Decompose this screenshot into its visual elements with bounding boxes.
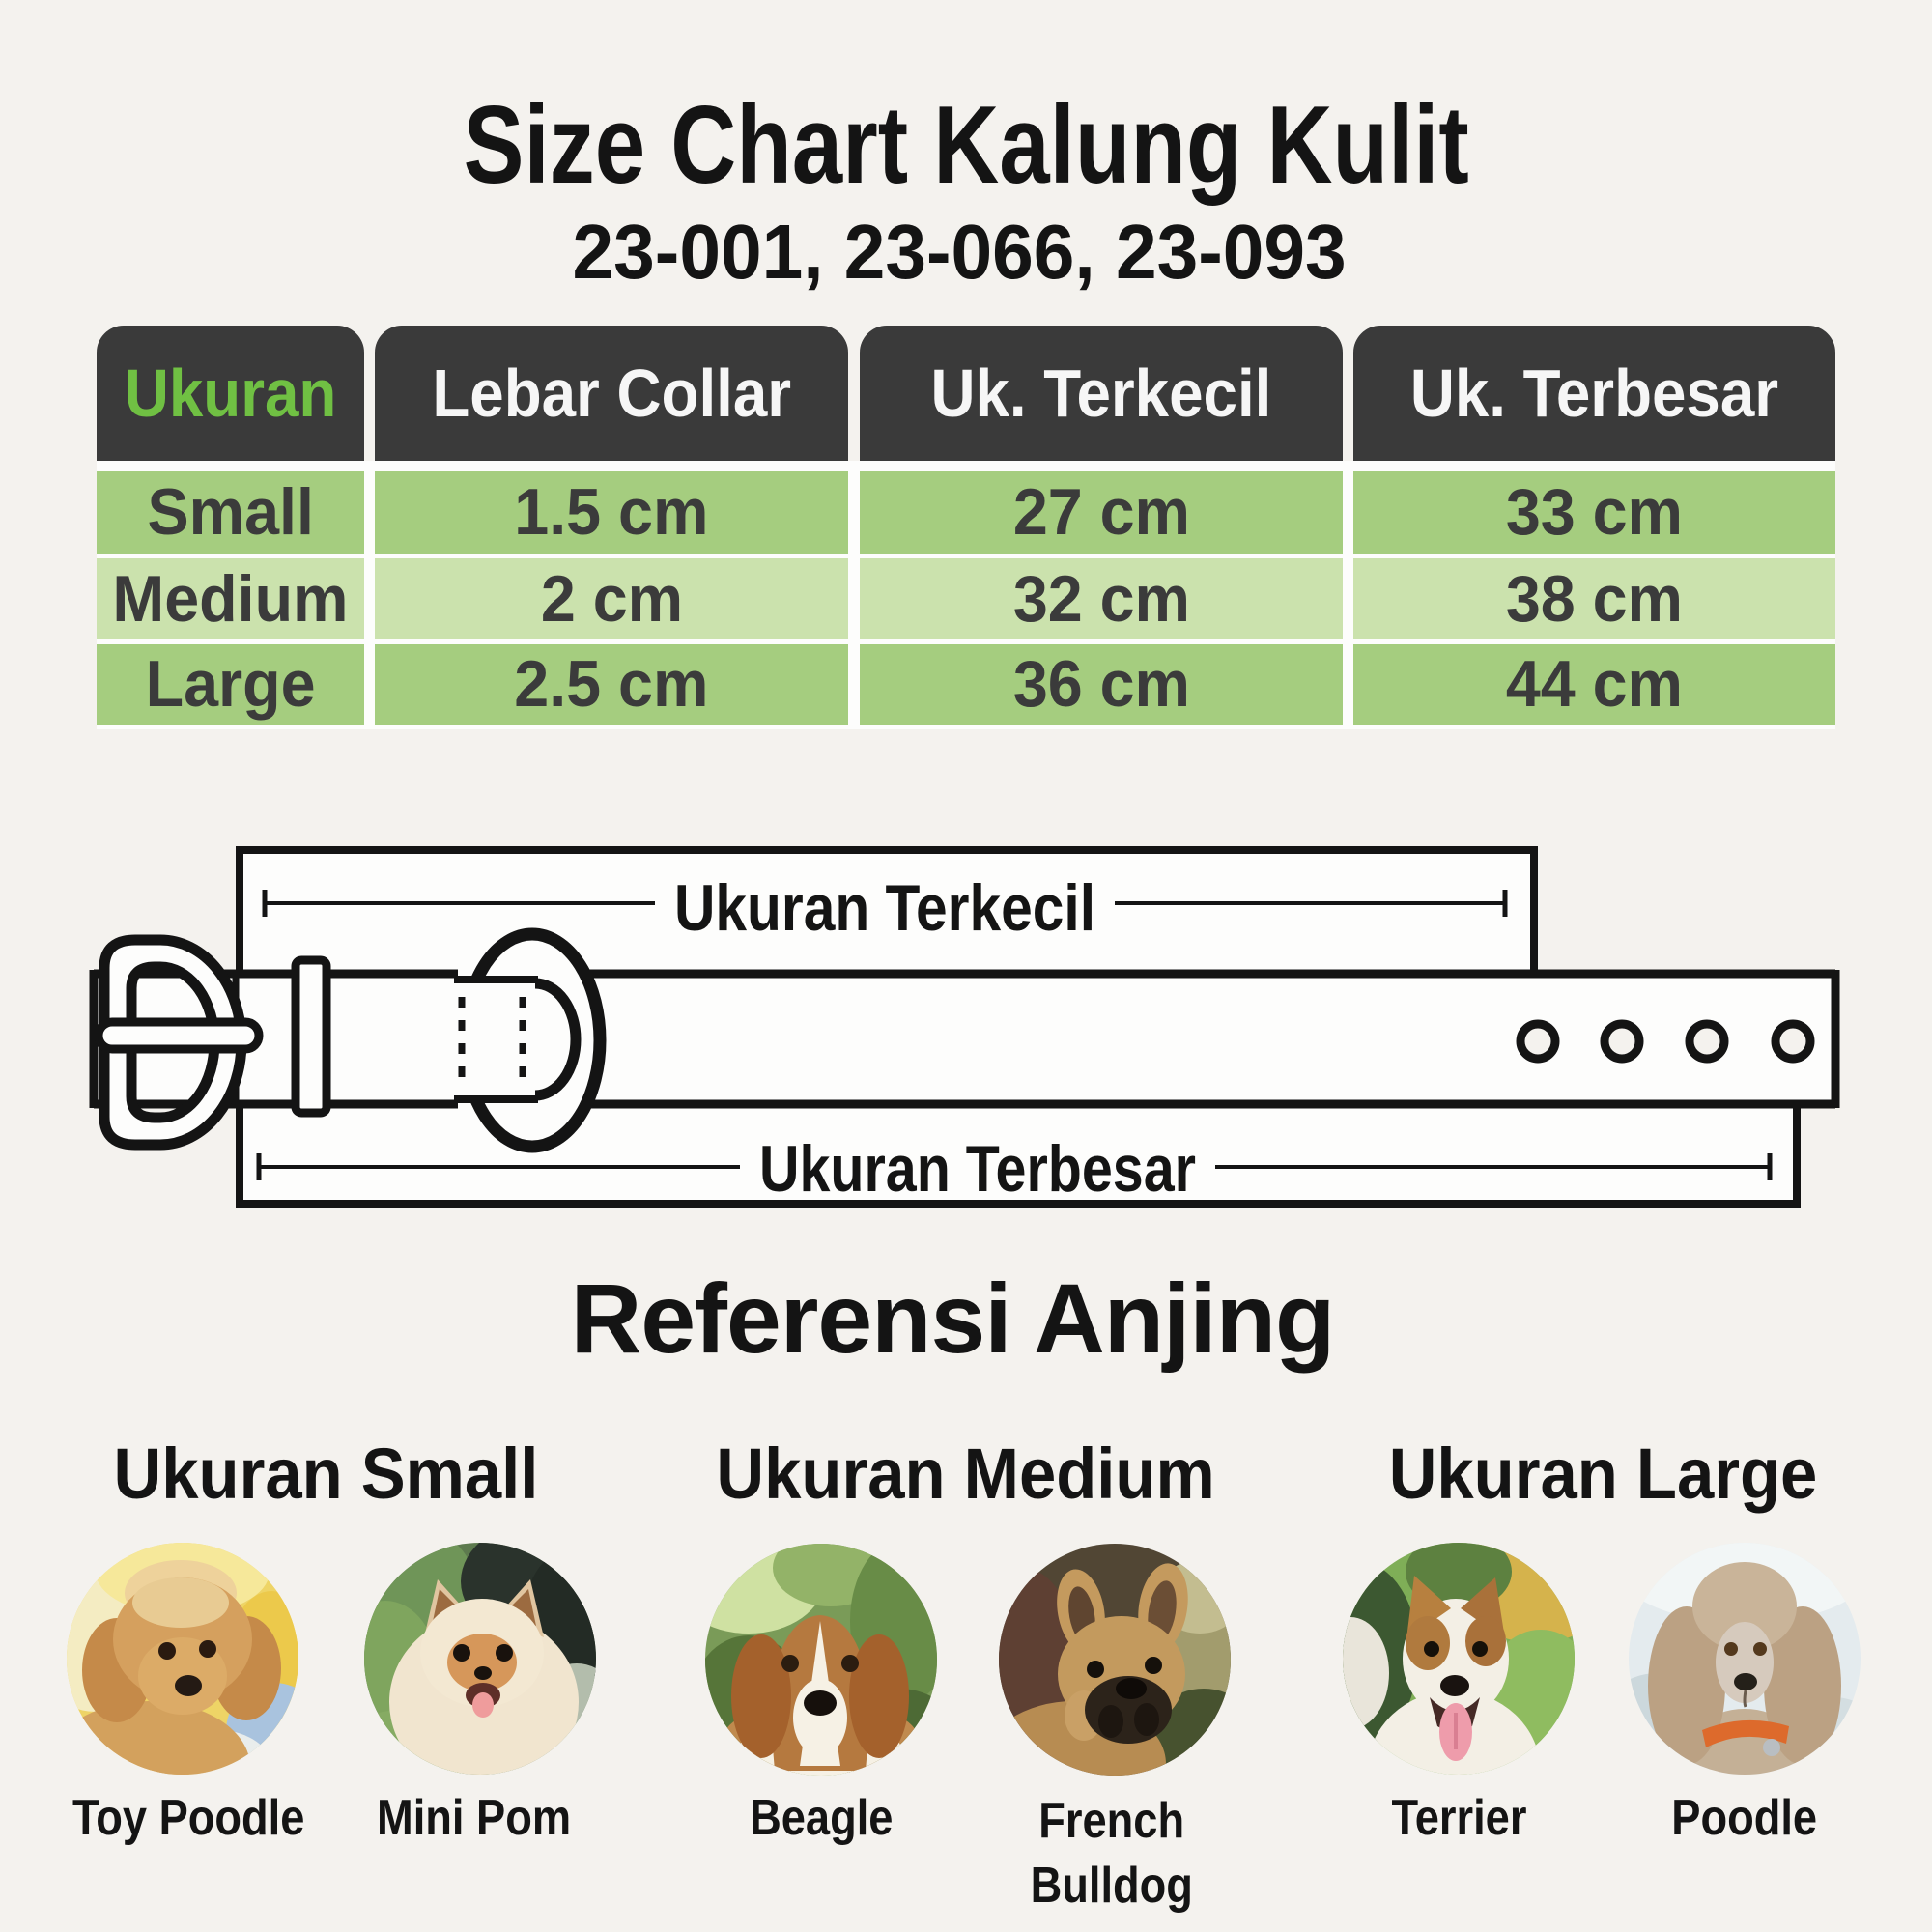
svg-text:Ukuran Terbesar: Ukuran Terbesar <box>759 1132 1196 1206</box>
svg-text:Ukuran Terkecil: Ukuran Terkecil <box>674 871 1095 945</box>
